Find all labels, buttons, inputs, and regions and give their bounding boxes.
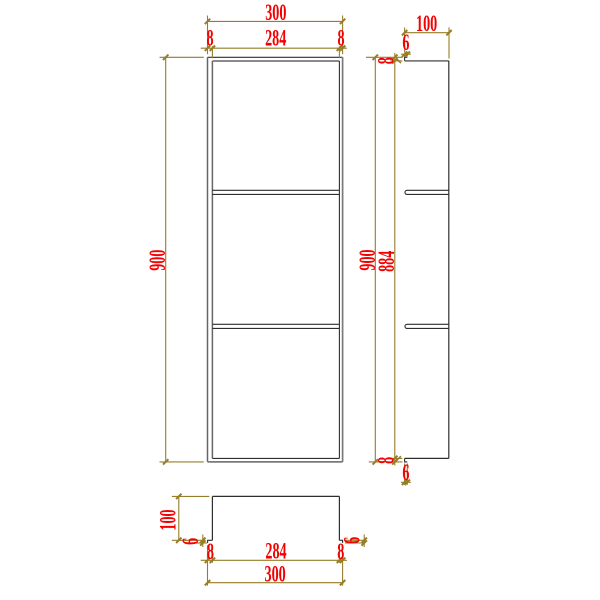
svg-text:8: 8	[207, 540, 214, 565]
svg-text:300: 300	[264, 562, 285, 587]
svg-text:100: 100	[156, 509, 181, 530]
svg-text:300: 300	[265, 1, 286, 26]
svg-text:284: 284	[265, 539, 287, 564]
svg-text:100: 100	[416, 12, 437, 37]
svg-text:8: 8	[374, 457, 399, 464]
svg-text:8: 8	[374, 57, 399, 64]
svg-text:8: 8	[337, 26, 344, 51]
svg-text:6: 6	[340, 537, 365, 544]
svg-text:284: 284	[265, 26, 287, 51]
svg-text:6: 6	[402, 31, 409, 56]
svg-text:6: 6	[179, 538, 204, 545]
svg-text:8: 8	[206, 26, 213, 51]
svg-text:884: 884	[375, 250, 400, 272]
svg-text:6: 6	[402, 461, 409, 486]
svg-text:900: 900	[146, 250, 171, 271]
